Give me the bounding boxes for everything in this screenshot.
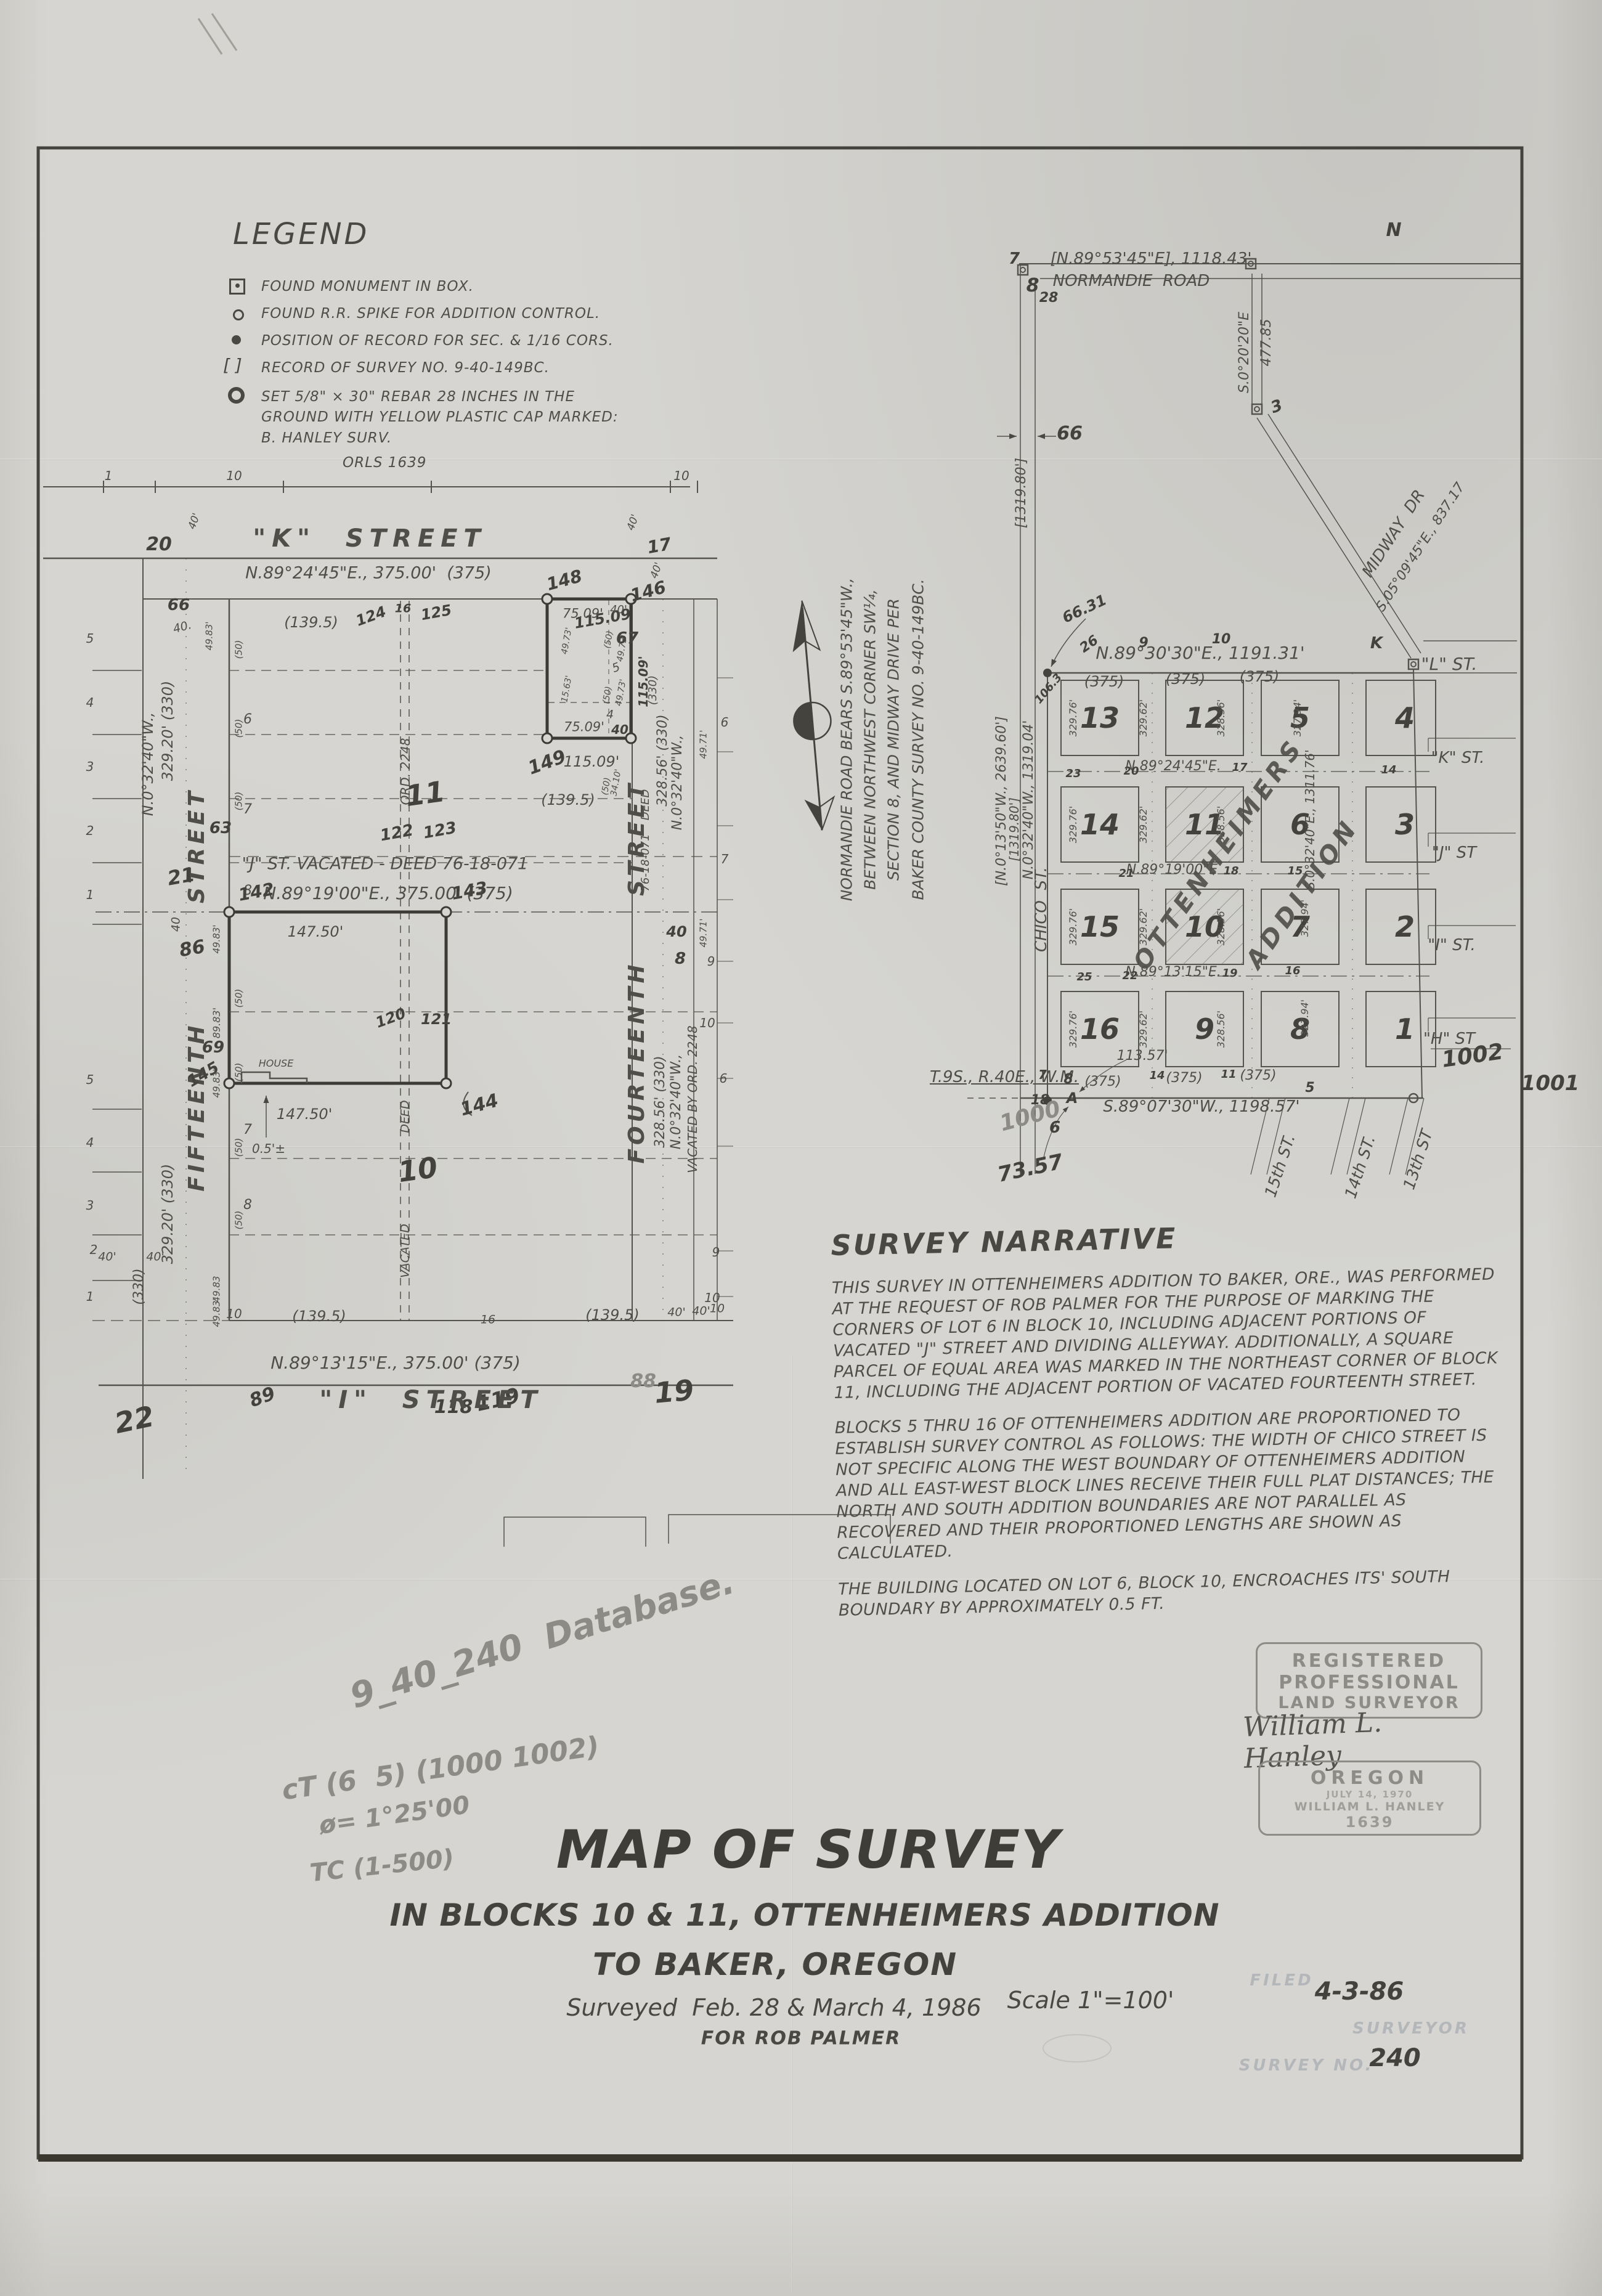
map-label: (50)	[235, 989, 244, 1008]
north-note-line: SECTION 8, AND MIDWAY DRIVE PER	[886, 598, 901, 881]
map-label: "I" ST.	[1428, 937, 1475, 953]
map-label: 6	[720, 1072, 728, 1085]
map-label: 15	[1287, 866, 1303, 877]
map-label: S.89°07'30"W., 1198.57'	[1103, 1099, 1299, 1115]
map-label: 113.57'	[1116, 1049, 1168, 1063]
map-label: (50)	[235, 640, 244, 659]
map-label: 19	[1222, 968, 1237, 979]
map-label: 1	[105, 470, 113, 482]
map-label: VACATED	[400, 1224, 412, 1278]
map-label: 10	[226, 470, 242, 482]
map-label: 75.09'	[563, 608, 603, 621]
rr-spike-icon	[233, 309, 244, 320]
map-label: 9	[712, 1246, 720, 1258]
map-label: "J" ST	[1432, 845, 1476, 861]
map-label: N.89°24'45"E.	[1125, 760, 1221, 773]
map-label: 89.83'	[212, 1008, 222, 1038]
stamp-line: REGISTERED	[1258, 1650, 1481, 1672]
map-label: 1	[1395, 1015, 1415, 1043]
map-label: 5	[86, 632, 94, 645]
stamp-name: WILLIAM L. HANLEY	[1260, 1800, 1479, 1814]
map-label: 10	[673, 470, 689, 482]
survey-narrative: SURVEY NARRATIVE THIS SURVEY IN OTTENHEI…	[831, 1215, 1506, 1635]
map-label: 10	[699, 1017, 715, 1029]
map-label: 11	[1221, 1069, 1236, 1080]
map-label: 5	[1305, 1081, 1314, 1095]
legend-title: LEGEND	[233, 217, 369, 251]
map-label: SURVEY NO.	[1239, 2058, 1374, 2074]
map-label: HOUSE	[259, 1059, 294, 1069]
legend-item: SET 5/8" × 30" REBAR 28 INCHES IN THE GR…	[261, 387, 619, 449]
map-label: 3	[86, 1199, 94, 1211]
map-label: (139.5)	[284, 615, 338, 630]
map-label: DEED	[640, 789, 651, 820]
map-label: 7	[721, 853, 729, 865]
map-label: "J" ST. VACATED - DEED 76-18-071	[242, 856, 529, 873]
map-label: 329.76'	[1068, 1011, 1078, 1048]
map-label: FILED	[1250, 1972, 1313, 1989]
map-label: "K" ST.	[1431, 750, 1485, 766]
map-label: A	[1067, 1091, 1078, 1105]
map-label: 329.62'	[1139, 908, 1149, 945]
map-label: "L" ST.	[1421, 656, 1478, 673]
filing-date-note: 4-3-86	[1315, 1977, 1404, 2006]
map-label: 329.20' (330)	[160, 681, 175, 781]
map-label: 7	[1009, 251, 1020, 267]
map-label: 88	[630, 1372, 656, 1391]
map-label: 328.56'	[1216, 806, 1226, 843]
map-label: 7	[243, 803, 252, 816]
map-label: 40	[666, 924, 686, 939]
map-label: 10	[226, 1308, 242, 1320]
map-label: [1319.80']	[1015, 458, 1028, 528]
map-label: 18	[1223, 866, 1238, 877]
map-label: (375)	[1240, 669, 1280, 684]
map-label: 328.56' (330)	[654, 1056, 667, 1147]
map-label: 10	[396, 1153, 439, 1186]
map-label: T.9S., R.40E., W.M.	[930, 1069, 1079, 1085]
map-label: 6	[243, 713, 252, 727]
map-label: S.0°20'20"E	[1238, 312, 1251, 393]
map-label: 40'	[98, 1252, 116, 1263]
map-label: 75.09'	[564, 721, 604, 734]
map-label: 327.94'	[1300, 999, 1310, 1036]
map-label: 328.56' (330)	[656, 714, 670, 806]
map-label: N.0°32'40"W.,	[670, 1054, 683, 1150]
map-label: NORMANDIE ROAD	[1053, 273, 1210, 289]
map-label: 28	[1039, 291, 1059, 305]
map-label: (330)	[132, 1268, 146, 1305]
map-label: 6	[1049, 1120, 1060, 1136]
map-label: 329.62'	[1139, 699, 1149, 736]
map-label: 329.76'	[1068, 699, 1078, 736]
map-label: 69	[202, 1040, 224, 1056]
map-label: 6	[721, 716, 729, 728]
map-label: (50)	[235, 1211, 244, 1230]
map-label: 7	[1038, 1069, 1047, 1081]
map-label: 9	[1195, 1015, 1214, 1043]
map-label: 8	[675, 951, 686, 967]
stamp-date: JULY 14, 1970	[1260, 1789, 1479, 1800]
map-label: 329.62'	[1139, 1011, 1149, 1048]
client-line: FOR ROB PALMER	[701, 2028, 901, 2050]
map-label: 11	[404, 777, 447, 810]
map-label: 328.56'	[1216, 1011, 1226, 1048]
map-subtitle: IN BLOCKS 10 & 11, OTTENHEIMERS ADDITION	[389, 1897, 1219, 1933]
map-label: 4	[1395, 704, 1415, 732]
map-label: (330)	[648, 675, 659, 705]
map-label: 25	[1076, 972, 1092, 983]
map-label: 329.62'	[1139, 806, 1149, 843]
map-label: 49.71'	[699, 918, 709, 947]
map-label: [1319.80']	[1008, 797, 1020, 861]
map-label: 40	[171, 917, 182, 932]
north-note-line: NORMANDIE ROAD BEARS S.89°53'45"W.,	[839, 578, 855, 902]
map-label: "I" STREET	[319, 1388, 543, 1412]
map-label: 76-18-071	[640, 834, 651, 891]
map-label: 15	[1080, 913, 1120, 941]
paper-smudge	[1043, 2035, 1111, 2062]
map-label: N.89°24'45"E., 375.00' (375)	[245, 565, 492, 582]
monument-in-box-icon	[229, 279, 245, 295]
map-label: (139.5)	[585, 1308, 639, 1322]
map-label: N.0°32'40"W., 1319.04'	[1022, 720, 1036, 880]
map-label: 328.56'	[1216, 699, 1226, 736]
map-label: 7	[243, 1123, 252, 1137]
map-label: 10	[1212, 633, 1231, 646]
surveyed-date: Surveyed Feb. 28 & March 4, 1986	[566, 1994, 981, 2021]
map-subtitle-location: TO BAKER, OREGON	[593, 1947, 958, 1982]
map-label: 328.56'	[1216, 908, 1226, 945]
narrative-paragraph: BLOCKS 5 THRU 16 OF OTTENHEIMERS ADDITIO…	[834, 1404, 1504, 1565]
stamp-number: 1639	[1260, 1814, 1479, 1831]
north-note-line: BETWEEN NORTHWEST CORNER SW¼,	[863, 589, 878, 890]
map-label: 2	[1395, 913, 1415, 941]
legend-item: RECORD OF SURVEY NO. 9-40-149BC.	[261, 360, 550, 376]
map-label: (50)	[235, 719, 244, 738]
map-label: 40'	[692, 1306, 710, 1317]
map-label: 49.71'	[699, 730, 709, 759]
map-label: 16	[395, 603, 411, 615]
map-label: 16	[1080, 1015, 1120, 1043]
map-label: 40'	[146, 1252, 164, 1263]
map-label: 66	[168, 597, 190, 613]
map-label: N	[1386, 221, 1401, 240]
map-label: [N.89°53'45"E], 1118.43'	[1051, 251, 1252, 267]
map-label: 3	[86, 760, 94, 773]
map-label: 1	[86, 889, 94, 901]
map-label: (375)	[1084, 1075, 1121, 1089]
map-label: N.89°13'15"E., 375.00' (375)	[270, 1354, 521, 1372]
map-label: CHICO ST.	[1033, 867, 1049, 952]
map-label: S.0°32'40"E., 1311.76'	[1304, 749, 1316, 889]
map-label: K	[1370, 635, 1383, 651]
map-label: 477.85	[1260, 319, 1274, 367]
map-label: 40'	[667, 1307, 685, 1319]
map-label: 10	[710, 1303, 725, 1315]
map-label: (375)	[1240, 1069, 1276, 1083]
map-label: 2	[90, 1244, 98, 1256]
map-label: 327.94'	[1293, 699, 1303, 736]
map-label: 66	[1057, 425, 1083, 443]
map-label: (50)	[235, 1138, 244, 1157]
map-label: 147.50'	[288, 924, 344, 939]
map-label: 14	[1149, 1070, 1165, 1081]
map-label: 8	[1063, 1073, 1073, 1086]
map-label: 0.5'±	[252, 1142, 285, 1155]
map-label: FOURTEENTH	[626, 961, 648, 1163]
stamp-line: PROFESSIONAL	[1258, 1672, 1481, 1693]
stamp-state: OREGON	[1260, 1767, 1479, 1789]
north-arrow	[783, 599, 840, 832]
legend-item: POSITION OF RECORD FOR SEC. & 1/16 CORS.	[261, 333, 614, 349]
map-label: N.0°32'40"W.,	[671, 735, 685, 831]
map-label: 4	[606, 709, 614, 721]
map-label: (50)	[235, 1063, 244, 1082]
map-label: 20	[146, 535, 172, 554]
map-label: N.0°32'40"W.,	[140, 712, 155, 816]
map-label: VACATED BY ORD. 2248	[686, 1025, 699, 1173]
map-label: 49.83'	[213, 1298, 222, 1327]
map-label: 327.94'	[1300, 900, 1310, 937]
map-label: 13	[1080, 704, 1120, 732]
map-label: (50)	[235, 792, 244, 811]
map-label: 1	[86, 1290, 94, 1303]
map-label: 63	[209, 820, 232, 836]
legend-item-sub: ORLS 1639	[343, 455, 426, 471]
legend-item: FOUND R.R. SPIKE FOR ADDITION CONTROL.	[261, 306, 600, 322]
map-label: 49.83'	[205, 621, 214, 650]
map-label: 121	[421, 1012, 452, 1027]
narrative-paragraph: THE BUILDING LOCATED ON LOT 6, BLOCK 10,…	[838, 1565, 1505, 1621]
sheet-number-note: 240	[1369, 2044, 1421, 2072]
rebar-icon	[228, 387, 245, 404]
map-label: 1001	[1521, 1073, 1580, 1094]
map-scale: Scale 1"=100'	[1007, 1987, 1174, 2014]
map-label: (139.5)	[292, 1309, 346, 1324]
map-label: 2	[86, 824, 94, 837]
survey-map-sheet: LEGEND FOUND MONUMENT IN BOX. FOUND R.R.…	[0, 0, 1602, 2296]
map-label: 21	[1118, 868, 1134, 879]
map-label: 49.83'	[213, 1069, 222, 1097]
map-label: DEED	[400, 1100, 412, 1133]
map-label: 20	[1123, 766, 1139, 777]
north-note-line: BAKER COUNTY SURVEY NO. 9-40-149BC.	[911, 579, 926, 900]
map-label: 22	[1122, 971, 1137, 982]
map-label: 4	[86, 696, 94, 709]
map-label: 9	[707, 955, 715, 967]
map-label: 115.09'	[564, 754, 620, 769]
map-label: 49.83'	[213, 924, 222, 953]
map-label: (375)	[1084, 674, 1124, 689]
map-label: "K" STREET	[253, 526, 486, 551]
map-label: 17	[646, 535, 672, 556]
map-label: 8	[1027, 277, 1039, 295]
map-label: N.89°13'15"E.	[1125, 966, 1221, 979]
narrative-paragraph: THIS SURVEY IN OTTENHEIMERS ADDITION TO …	[832, 1264, 1501, 1403]
map-label: 86	[178, 938, 206, 961]
map-label: 5	[86, 1073, 94, 1086]
map-label: 147.50'	[277, 1107, 333, 1122]
map-label: 14	[1381, 765, 1396, 776]
brackets-icon: [ ]	[223, 355, 242, 375]
map-label: 3	[1395, 810, 1415, 839]
record-dot-icon	[232, 335, 241, 344]
map-label: 21	[166, 864, 196, 888]
map-label: SURVEYOR	[1352, 2021, 1470, 2037]
map-label: (139.5)	[541, 792, 595, 807]
map-label: 23	[1065, 768, 1081, 780]
map-label: 40'	[610, 605, 627, 616]
map-label: (375)	[1166, 672, 1206, 686]
map-label: 19	[653, 1375, 695, 1407]
map-label: 16	[1285, 966, 1300, 977]
legend-item: FOUND MONUMENT IN BOX.	[261, 279, 474, 295]
map-label: 9	[1139, 637, 1148, 650]
map-label: 329.76'	[1068, 908, 1078, 945]
map-label: 8	[243, 1199, 252, 1212]
map-label: 40	[611, 723, 628, 736]
map-label: 16	[481, 1314, 495, 1326]
map-label: 22	[112, 1402, 157, 1438]
map-label: N.89°19'00"E	[1126, 863, 1218, 877]
map-label: (375)	[1166, 1072, 1202, 1085]
map-title: MAP OF SURVEY	[556, 1819, 1060, 1881]
map-label: 4	[86, 1136, 94, 1149]
map-label: 17	[1232, 762, 1247, 773]
map-label: N.89°30'30"E., 1191.31'	[1096, 645, 1304, 662]
map-label: 329.76'	[1068, 806, 1078, 843]
map-label: 329.20' (330)	[160, 1164, 175, 1264]
map-label: 14	[1080, 810, 1120, 839]
